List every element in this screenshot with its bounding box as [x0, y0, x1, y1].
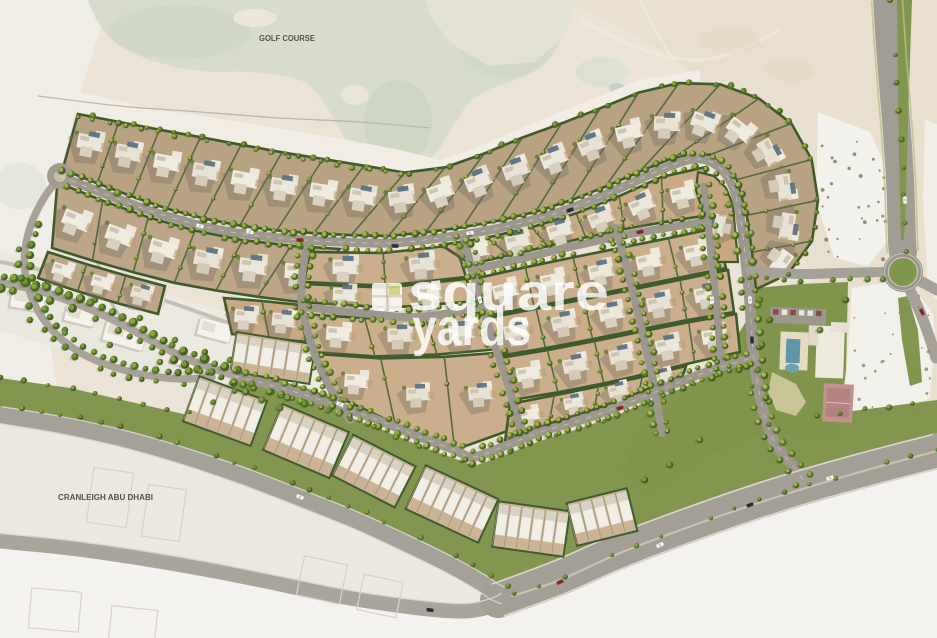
svg-text:GOLF COURSE: GOLF COURSE — [259, 34, 316, 43]
svg-text:yards: yards — [412, 299, 531, 357]
svg-text:CRANLEIGH ABU DHABI: CRANLEIGH ABU DHABI — [58, 493, 153, 502]
